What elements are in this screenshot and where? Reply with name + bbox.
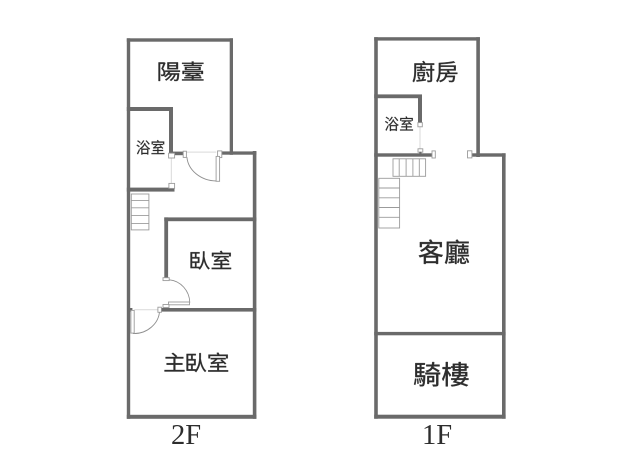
svg-text:1F: 1F — [422, 420, 452, 451]
svg-text:2F: 2F — [171, 420, 201, 451]
